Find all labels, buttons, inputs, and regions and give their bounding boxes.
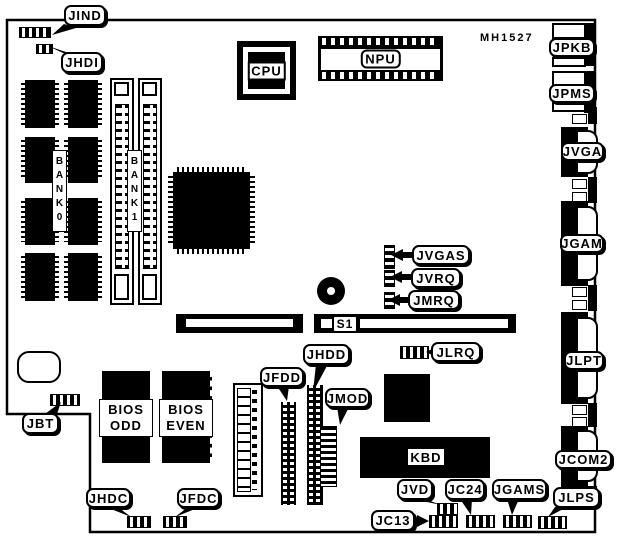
callout-jbt: JBT xyxy=(22,413,59,434)
callout-jmrq: JMRQ xyxy=(408,290,460,310)
callout-jfdc: JFDC xyxy=(177,488,220,508)
callout-jgams: JGAMS xyxy=(492,479,547,500)
callout-jmod: JMOD xyxy=(325,388,370,408)
callout-tails xyxy=(0,0,618,541)
callout-jfdd: JFDD xyxy=(260,367,304,387)
s1-label: S1 xyxy=(332,315,358,333)
callout-jhdi: JHDI xyxy=(61,52,103,73)
jgam-label: JGAM xyxy=(560,234,604,253)
callout-jvd: JVD xyxy=(397,479,433,500)
callout-jlps: JLPS xyxy=(553,487,600,508)
callout-jhdd: JHDD xyxy=(303,344,350,365)
callout-jc24: JC24 xyxy=(445,479,485,500)
jlpt-label: JLPT xyxy=(564,351,604,370)
jpms-label: JPMS xyxy=(549,84,595,103)
jcom2-label: JCOM2 xyxy=(555,450,612,469)
callout-jvrq: JVRQ xyxy=(411,268,461,288)
jpkb-label: JPKB xyxy=(549,38,595,57)
callout-jvgas: JVGAS xyxy=(412,245,470,265)
callout-jlrq: JLRQ xyxy=(431,342,481,362)
jvga-label: JVGA xyxy=(561,142,604,161)
callout-jhdc: JHDC xyxy=(86,488,131,508)
motherboard-diagram: BANK0 BANK1 CPU NPU MH1527 JPKB JPMS xyxy=(0,0,618,541)
kbd-label: KBD xyxy=(407,448,445,466)
callout-jind: JIND xyxy=(64,5,106,26)
callout-jc13: JC13 xyxy=(371,510,415,531)
